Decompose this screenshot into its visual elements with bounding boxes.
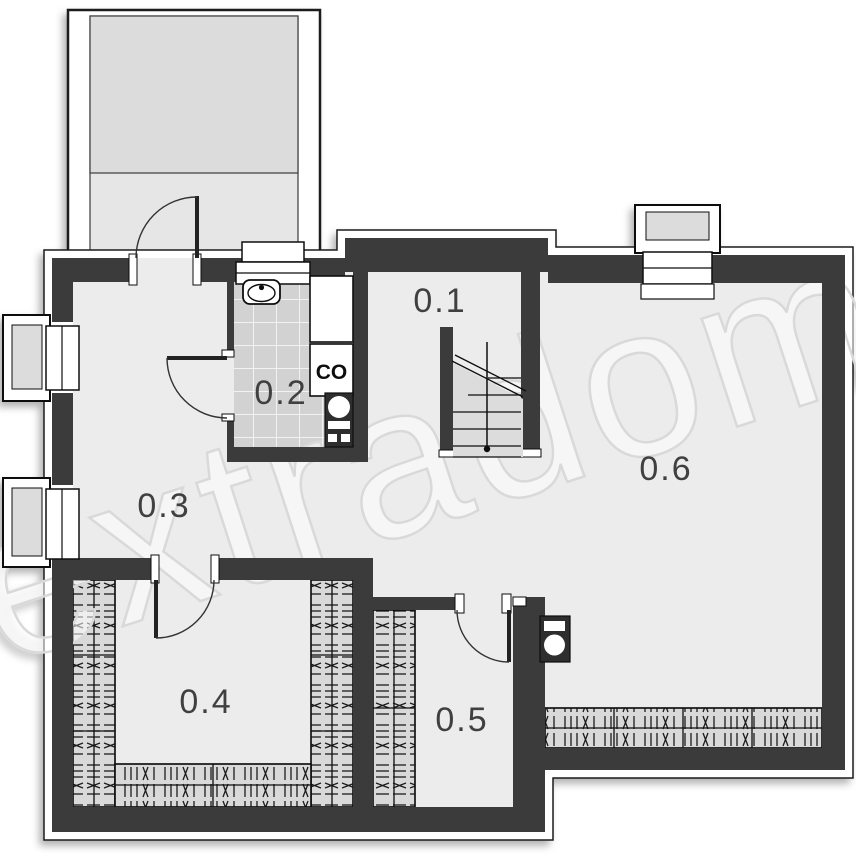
stair-start-dot [484,446,490,452]
band-room04-south [115,764,311,807]
window-room02-outer-sill [242,242,304,262]
band-room06-south [545,708,822,748]
wall-room03-room04-right [215,558,373,580]
washbasin [243,280,280,304]
room-label-0-5: 0.5 [435,701,488,739]
wall-stair-divider [440,327,453,457]
light-well-2-pit [12,488,42,556]
wall-south-east [545,748,845,770]
wall-stairwell-east [521,272,540,457]
entrance-terrace [68,10,320,258]
floor-plan-drawing: extradom [0,0,856,860]
room-label-0-6: 0.6 [639,450,692,488]
co-boiler-label: CO [316,361,348,384]
wall-room05-north [353,597,462,610]
window-west-1 [3,315,79,401]
entrance-door-opening [133,258,197,282]
wall-room03-room04-left [52,558,155,580]
faucet-dot [259,285,264,290]
window-room02-north [236,242,310,284]
band-room05-west [373,610,415,807]
wall-north-mid [345,238,548,272]
room-label-0-3: 0.3 [137,487,190,525]
room-label-0-2: 0.2 [254,374,307,412]
light-well-1-pit [12,325,42,389]
heater-unit-room06 [540,616,570,662]
room-label-0-4: 0.4 [179,683,232,721]
window-3-inner-sill [641,284,714,299]
band-room04-east [311,580,353,807]
wall-room02-south [227,447,368,462]
floor-plan-canvas: extradom [0,0,856,860]
window-west-2 [3,478,79,567]
light-well-3-pit [646,212,709,240]
room-label-0-1: 0.1 [413,282,466,320]
window-room06-north [635,205,720,299]
wall-east [822,255,845,770]
wall-room02-west-upper [227,275,234,355]
boiler-appliance [325,393,353,447]
wall-south-west [52,807,545,832]
cabinet [310,276,353,342]
wall-room02-room01 [353,272,368,462]
